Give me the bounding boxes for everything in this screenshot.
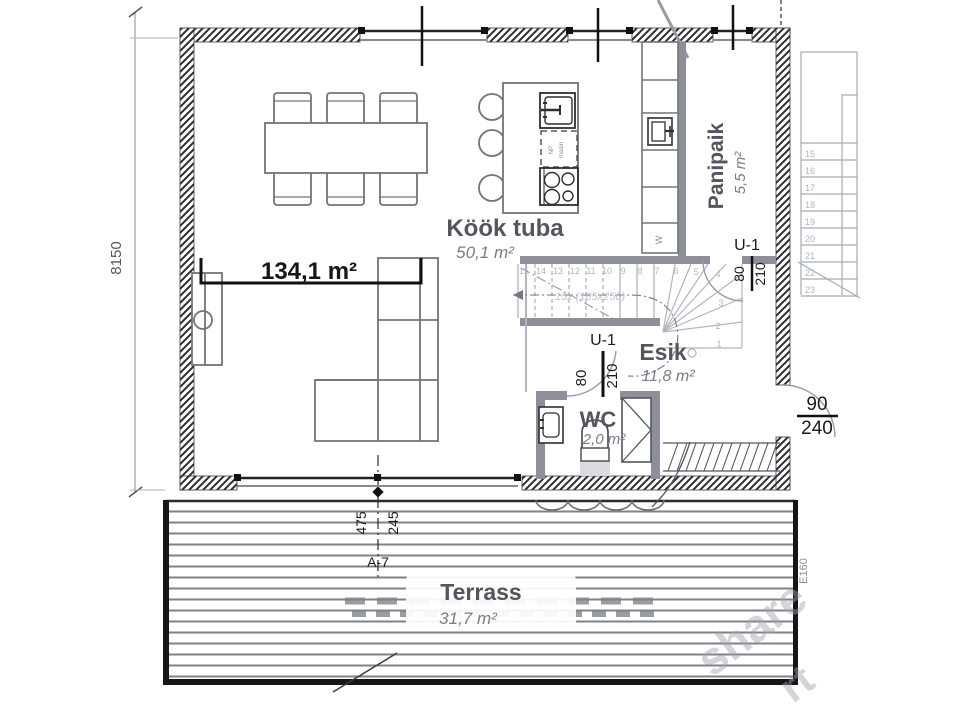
svg-text:23: 23 xyxy=(805,285,815,295)
kitchen-panipaik-wall xyxy=(678,42,686,264)
u1-code: U-1 xyxy=(734,237,760,254)
section-dim-left: 475 xyxy=(353,511,369,535)
window-top-3 xyxy=(711,5,753,50)
svg-text:2: 2 xyxy=(715,321,720,331)
wc-right-wall xyxy=(651,391,660,479)
svg-text:10: 10 xyxy=(602,266,612,276)
kook-area: 50,1 m² xyxy=(456,243,515,262)
svg-text:16: 16 xyxy=(805,166,815,176)
svg-text:17: 17 xyxy=(805,183,815,193)
stair-bottom-wall xyxy=(520,318,660,326)
washer-label: W xyxy=(654,235,664,244)
svg-text:8: 8 xyxy=(637,266,642,276)
svg-text:20: 20 xyxy=(805,234,815,244)
esik-area: 11,8 m² xyxy=(641,368,695,385)
svg-text:14: 14 xyxy=(536,266,546,276)
u1-width: 80 xyxy=(573,370,590,387)
section-label: A-7 xyxy=(367,554,389,570)
bar-stool xyxy=(479,94,505,120)
section-dim-right: 245 xyxy=(385,511,401,535)
dining-set xyxy=(265,93,427,205)
upper-stair-numbers: 15 16 17 18 19 20 21 22 23 xyxy=(805,149,815,295)
terrace-bottom-border xyxy=(163,679,798,685)
door-label-front: 90 240 xyxy=(797,394,838,439)
esik-name: Esik xyxy=(639,339,687,365)
left-dimension: 8150 xyxy=(108,7,178,497)
svg-text:3: 3 xyxy=(718,298,723,308)
window-top-2 xyxy=(566,8,633,62)
svg-text:1: 1 xyxy=(716,339,721,349)
floorplan-drawing: Terrass 31,7 m² E160 475 245 A-7 xyxy=(0,0,957,706)
living-room xyxy=(192,258,438,441)
kook-name: Köök tuba xyxy=(446,215,564,242)
svg-text:5: 5 xyxy=(693,267,698,277)
window-top-1 xyxy=(358,6,488,66)
svg-text:18: 18 xyxy=(805,200,815,210)
terrace-left-border xyxy=(163,500,169,684)
svg-text:15: 15 xyxy=(519,266,529,276)
dishwasher-label-2: masin xyxy=(559,142,565,158)
kitchen-cabinet-column: W xyxy=(642,42,678,253)
wc-cabinet xyxy=(622,398,651,462)
svg-text:6: 6 xyxy=(673,266,678,276)
bar-stool xyxy=(479,130,505,156)
dishwasher-label-1: NP xyxy=(549,146,555,154)
stair-top-wall xyxy=(520,256,710,264)
svg-text:4: 4 xyxy=(715,269,720,279)
panipaik-name: Panipaik xyxy=(705,122,728,209)
svg-text:19: 19 xyxy=(805,217,815,227)
terrace-name: Terrass xyxy=(440,579,521,605)
wc-sink xyxy=(539,407,563,443)
front-door-height: 240 xyxy=(801,418,833,439)
u1-height: 210 xyxy=(752,262,768,286)
oven xyxy=(648,118,674,145)
stair-note: 15x (185x250) xyxy=(555,291,626,303)
u1-width: 80 xyxy=(731,266,747,282)
panipaik-area: 5,5 m² xyxy=(732,151,749,195)
upper-staircase: 15 16 17 18 19 20 21 22 23 xyxy=(798,52,860,298)
total-area-label: 134,1 m² xyxy=(261,258,357,285)
bar-stool xyxy=(479,175,505,201)
svg-text:12: 12 xyxy=(570,266,580,276)
terrace-edge-dim: E160 xyxy=(798,558,810,584)
u1-height: 210 xyxy=(604,363,621,388)
svg-text:15: 15 xyxy=(805,149,815,159)
tv-bench xyxy=(192,273,222,365)
u1-code: U-1 xyxy=(590,332,616,349)
wc-area: 2,0 m² xyxy=(582,431,627,448)
kitchen-island: NP masin xyxy=(479,83,578,213)
left-dimension-value: 8150 xyxy=(108,241,125,274)
svg-text:9: 9 xyxy=(620,266,625,276)
wc-name: WC xyxy=(580,407,617,432)
svg-text:11: 11 xyxy=(586,266,595,276)
svg-text:7: 7 xyxy=(654,266,659,276)
dining-table xyxy=(265,123,427,173)
svg-text:21: 21 xyxy=(805,251,815,261)
front-door-width: 90 xyxy=(806,394,827,415)
terrace-area: 31,7 m² xyxy=(439,609,498,628)
svg-text:13: 13 xyxy=(553,266,563,276)
svg-text:22: 22 xyxy=(805,268,815,278)
door-label-u1-wc: U-1 80 210 xyxy=(573,332,621,397)
floorplan-canvas: Terrass 31,7 m² E160 475 245 A-7 xyxy=(0,0,957,706)
stair-numbers: 15 14 13 12 11 10 9 8 7 6 5 4 3 2 1 xyxy=(519,266,724,349)
sofa xyxy=(315,258,438,441)
